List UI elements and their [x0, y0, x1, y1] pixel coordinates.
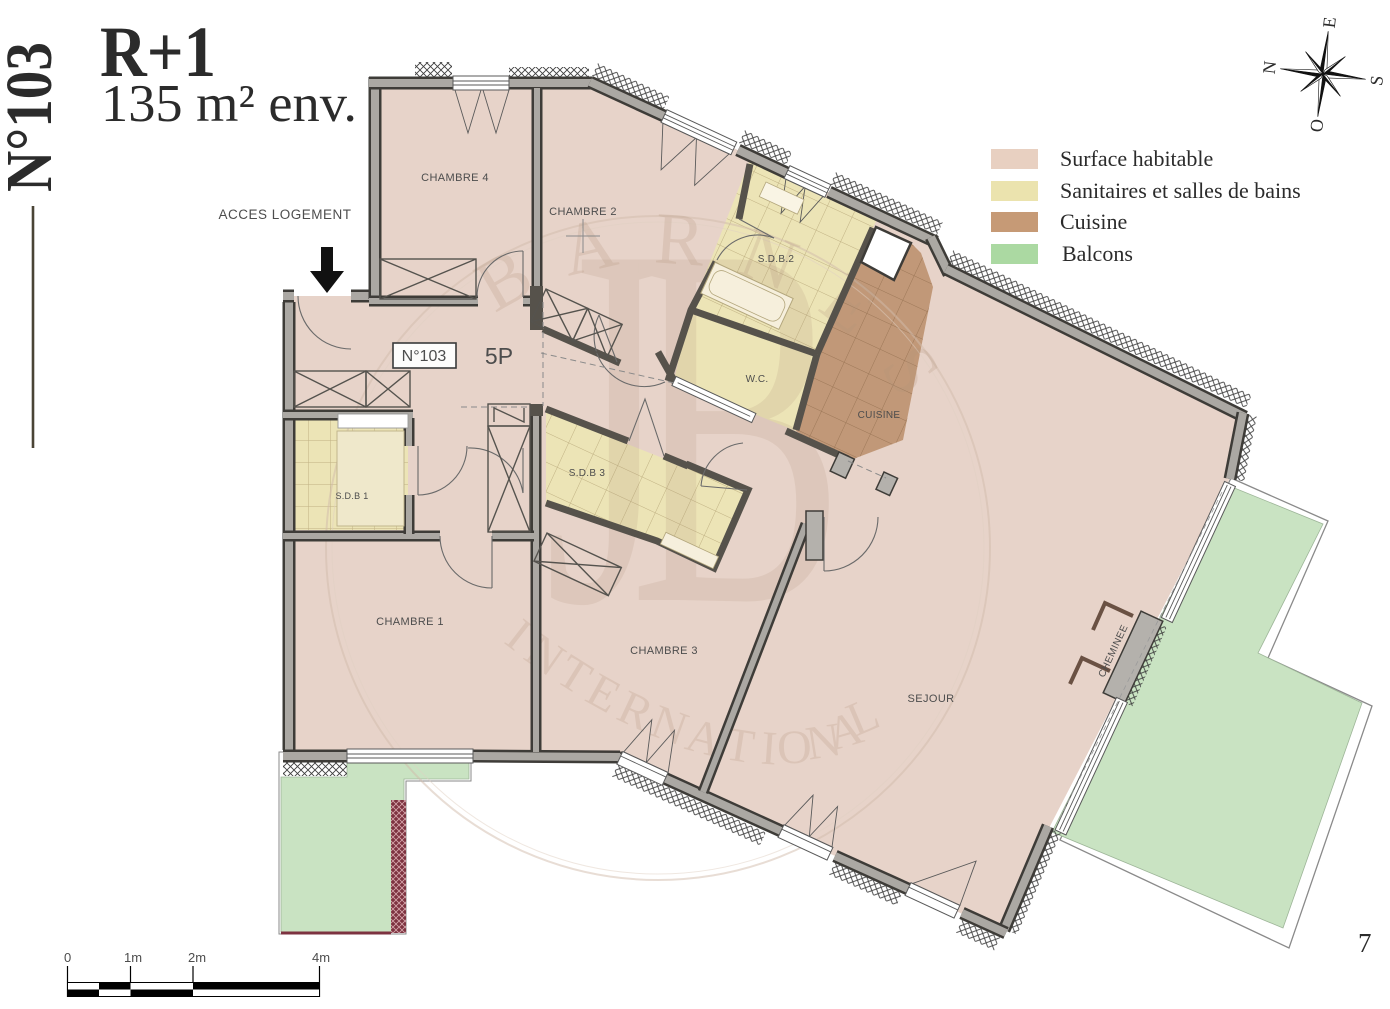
svg-text:Balcons: Balcons — [1062, 241, 1133, 266]
svg-text:S.D.B 1: S.D.B 1 — [335, 491, 368, 501]
svg-text:N: N — [1259, 60, 1280, 75]
svg-text:1m: 1m — [124, 950, 142, 965]
svg-text:0: 0 — [64, 950, 71, 965]
svg-text:5P: 5P — [485, 343, 513, 369]
svg-text:W.C.: W.C. — [746, 374, 769, 385]
svg-text:CHAMBRE 3: CHAMBRE 3 — [630, 645, 698, 657]
svg-text:CUISINE: CUISINE — [858, 410, 901, 421]
svg-text:2m: 2m — [188, 950, 206, 965]
svg-text:Cuisine: Cuisine — [1060, 209, 1127, 234]
svg-text:O: O — [1306, 118, 1327, 133]
svg-text:S.D.B.2: S.D.B.2 — [758, 254, 795, 265]
svg-text:7: 7 — [1358, 928, 1372, 958]
svg-text:CHAMBRE 2: CHAMBRE 2 — [549, 206, 617, 218]
svg-text:CHAMBRE 1: CHAMBRE 1 — [376, 616, 444, 628]
svg-text:4m: 4m — [312, 950, 330, 965]
svg-text:R: R — [652, 197, 708, 282]
svg-text:ACCES LOGEMENT: ACCES LOGEMENT — [218, 207, 351, 222]
svg-text:CHAMBRE 4: CHAMBRE 4 — [421, 172, 489, 184]
svg-text:Sanitaires et salles de bains: Sanitaires et salles de bains — [1060, 178, 1301, 203]
svg-text:135 m² env.: 135 m² env. — [101, 75, 357, 133]
svg-text:N°103: N°103 — [402, 348, 447, 365]
svg-text:S.D.B 3: S.D.B 3 — [569, 468, 606, 479]
svg-text:SEJOUR: SEJOUR — [907, 693, 954, 705]
svg-text:Surface habitable: Surface habitable — [1060, 146, 1213, 171]
svg-text:N°103: N°103 — [0, 42, 66, 192]
